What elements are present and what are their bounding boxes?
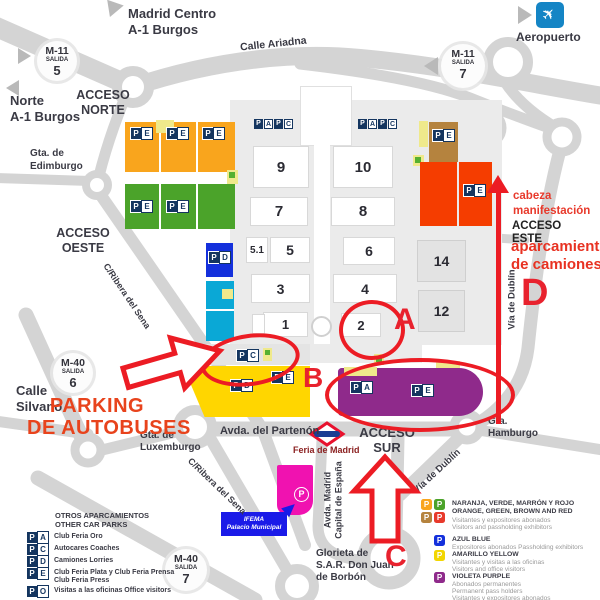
legend-row-text: Camiones Lorries (54, 557, 113, 565)
note-line: PARKING (27, 395, 167, 417)
access-line: NORTE (76, 103, 130, 118)
c-badge: C (284, 119, 293, 129)
street-name: Capital de España (334, 453, 345, 548)
pe-badge: PE (166, 127, 189, 140)
hall-5-number: 5 (286, 242, 294, 258)
hall-9: 9 (253, 146, 309, 188)
street-name: Hamburgo (488, 428, 538, 440)
e-badge: E (177, 200, 189, 213)
p-badge: P (274, 119, 283, 129)
note-cabeza-manifestacion: cabeza manifestación (513, 189, 590, 219)
hall-4-number: 4 (361, 281, 369, 297)
legend-row-text: Club Feria Plata y Club Feria Prensa (54, 569, 174, 577)
legend-row-text: Autocares Coaches (54, 545, 119, 553)
p-badge: P (358, 119, 367, 129)
convention-center-building (300, 86, 352, 146)
plaza-circle (311, 316, 332, 337)
hall-1-number: 1 (282, 317, 289, 332)
o-badge: O (37, 585, 49, 598)
acceso-norte-label: ACCESO NORTE (76, 88, 130, 118)
hall-7: 7 (250, 197, 308, 226)
purple-chip: P (434, 572, 445, 583)
legend-title-line: OTHER CAR PARKS (55, 520, 149, 529)
street-name: Avda. del Partenón (220, 425, 319, 437)
yellow-chip: P (434, 550, 445, 561)
ifema-palacio-label: IFEMA Palacio Municipal (221, 512, 287, 536)
legend-right-sub: Permanent pass holders (452, 588, 522, 595)
ifema-name: IFEMA (221, 516, 287, 524)
note-line: aparcamiento (511, 238, 600, 256)
legend-right-sub: Visitors and passholding exhibitors (452, 524, 552, 531)
hall-6-number: 6 (365, 243, 373, 259)
note-parking-autobuses: PARKING DE AUTOBUSES (27, 395, 167, 439)
note-line: de camiones (511, 256, 600, 274)
green-chip: P (434, 499, 445, 510)
hall-7-number: 7 (275, 203, 283, 220)
hall-3: 3 (251, 274, 310, 303)
parking-divider (206, 309, 234, 311)
gate-marker (222, 289, 233, 299)
acceso-oeste-label: ACCESO OESTE (56, 226, 110, 256)
e-badge: E (474, 184, 486, 197)
palacio-name: Palacio Municipal (221, 524, 287, 532)
street-avda-partenon: Avda. del Partenón (220, 425, 319, 437)
exit-number: 7 (441, 67, 485, 80)
pe-badge: PE (130, 127, 153, 140)
dest-line: A-1 Burgos (10, 109, 80, 125)
marker-c: C (385, 540, 407, 574)
c-badge: C (388, 119, 397, 129)
hall-9-number: 9 (277, 159, 285, 176)
brown-parking-east (429, 122, 458, 162)
gate-marker (419, 121, 428, 147)
hall-8: 8 (331, 197, 395, 226)
street-name: Gta. de (30, 147, 83, 160)
p-badge: P (254, 119, 263, 129)
street-name: de Borbón (316, 572, 394, 584)
legend-right-sub: Expositores abonados Passholding exhibit… (452, 544, 583, 551)
legend-right-sub: Abonados permanentes (452, 581, 521, 588)
blue-chip: P (434, 535, 445, 546)
note-line: manifestación (513, 204, 590, 219)
e-badge: E (213, 127, 225, 140)
hall-4: 4 (333, 274, 397, 303)
e-badge: E (443, 129, 455, 142)
street-name: S.A.R. Don Juan (316, 560, 394, 572)
p-badge: P (378, 119, 387, 129)
street-name: Edimburgo (30, 160, 83, 173)
red-parking-east-1 (420, 162, 457, 226)
exit-m11-salida5: M-11 SALIDA 5 (37, 41, 77, 81)
dest-norte-burgos: Norte A-1 Burgos (10, 93, 80, 125)
marker-a: A (394, 303, 416, 337)
legend-title-line: OTROS APARCAMIENTOS (55, 511, 149, 520)
street-name: Glorieta de (316, 548, 394, 560)
red-chip: P (434, 512, 445, 523)
access-line: ACCESO (512, 220, 561, 233)
pe-badge: PE (166, 200, 189, 213)
papc-badges-west: PAPC (254, 119, 293, 129)
legend-right-title: AMARILLO YELLOW (452, 551, 519, 559)
hall-5: 5 (270, 237, 310, 263)
orange-chip: P (421, 499, 432, 510)
a-badge: A (368, 119, 377, 129)
legend-left-title: OTROS APARCAMIENTOS OTHER CAR PARKS (55, 511, 149, 529)
note-line: DE AUTOBUSES (27, 417, 167, 439)
dest-line: Madrid Centro (128, 6, 216, 22)
street-avda-madrid: Avda. Madrid Capital de España (323, 453, 345, 548)
exit-m11-salida7: M-11 SALIDA 7 (441, 44, 485, 88)
pe-badge: PE (202, 127, 225, 140)
central-avenue (314, 144, 330, 344)
hall-1-annex (252, 314, 265, 334)
hall-5-1: 5.1 (246, 237, 268, 263)
legend-right-sub: Visitantes y expositores abonados (452, 517, 551, 524)
d-badge: D (219, 251, 231, 264)
hall-6: 6 (343, 237, 395, 265)
legend-row-text: Club Feria Oro (54, 533, 103, 541)
marker-d: D (521, 272, 548, 315)
e-badge: E (141, 127, 153, 140)
e-badge: E (177, 127, 189, 140)
access-line: OESTE (56, 241, 110, 256)
legend-pe-badge: PE (26, 567, 49, 580)
marker-b: B (303, 362, 323, 394)
street-gta-edimburgo: Gta. de Edimburgo (30, 147, 83, 173)
dest-line: Aeropuerto (516, 30, 581, 44)
e-badge: E (141, 200, 153, 213)
dest-madrid-centro: Madrid Centro A-1 Burgos (128, 6, 216, 38)
note-line: cabeza (513, 189, 590, 204)
plane-glyph: ✈ (536, 1, 564, 29)
legend-right-title: NARANJA, VERDE, MARRÓN Y ROJO (452, 500, 574, 508)
hall-10: 10 (333, 146, 393, 188)
e-badge: E (37, 567, 49, 580)
access-line: ACCESO (76, 88, 130, 103)
marker-letter: C (385, 540, 407, 573)
legend-right-title: ORANGE, GREEN, BROWN AND RED (452, 508, 573, 516)
legend-row-text: Visitas a las oficinas Office visitors (54, 587, 171, 595)
marker-letter: B (303, 362, 323, 393)
p-circle-badge: P (294, 487, 309, 502)
street-name: Avda. Madrid (323, 453, 334, 548)
hall-14: 14 (417, 240, 466, 282)
hall-12: 12 (418, 290, 465, 332)
airport-icon: ✈ (536, 2, 564, 28)
pd-badge: PD (208, 251, 231, 264)
legend-right-title: VIOLETA PURPLE (452, 573, 510, 581)
exit-road: M-11 (441, 49, 485, 60)
hall-8-number: 8 (359, 203, 367, 220)
legend-right-sub: Visitantes y visitas a las oficinas (452, 559, 544, 566)
pe-badge: PE (463, 184, 486, 197)
hall-3-number: 3 (277, 281, 285, 297)
parking-divider (196, 122, 198, 172)
marker-letter: D (521, 272, 548, 314)
brown-chip: P (421, 512, 432, 523)
exit-road: M-40 (165, 554, 207, 565)
pe-badge: PE (432, 129, 455, 142)
access-line: ACCESO (56, 226, 110, 241)
marker-letter: A (394, 303, 416, 336)
p-badge: P (298, 489, 304, 499)
street-glorieta-sar: Glorieta de S.A.R. Don Juan de Borbón (316, 548, 394, 584)
street-name: Luxemburgo (140, 442, 201, 454)
legend-row-text: Club Feria Press (54, 577, 109, 585)
arrow-right-icon (518, 6, 532, 24)
ifema-parking-map: 9 10 7 8 5.1 5 6 3 4 1 2 14 12 PAPC PAPC… (0, 0, 600, 600)
hall-5-1-number: 5.1 (250, 245, 264, 256)
exit-number: 5 (37, 64, 77, 77)
gate-marker (227, 170, 238, 184)
hall-12-number: 12 (434, 303, 450, 319)
exit-road: M-11 (37, 46, 77, 57)
acceso-sur-arrow (350, 453, 420, 545)
parking-divider (196, 184, 198, 229)
parking-divider (159, 184, 161, 229)
legend-right-title: AZUL BLUE (452, 536, 490, 544)
hall-14-number: 14 (434, 253, 450, 269)
note-aparcamiento-camiones: aparcamiento de camiones (511, 238, 600, 273)
dest-aeropuerto: Aeropuerto (516, 30, 581, 44)
arrow-left-icon (424, 57, 438, 75)
exit-road: M-40 (53, 358, 93, 369)
papc-badges-east: PAPC (358, 119, 397, 129)
manifestation-arrow-head (487, 175, 509, 193)
circle-purple-parking (325, 358, 515, 432)
manifestation-arrow-shaft (496, 192, 501, 424)
dest-line: A-1 Burgos (128, 22, 216, 38)
a-badge: A (264, 119, 273, 129)
dest-line: Norte (10, 93, 80, 109)
pe-badge: PE (130, 200, 153, 213)
legend-right-sub: Visitors and office visitors (452, 566, 525, 573)
legend-right-sub: Visitantes y expositores abonados (452, 595, 551, 600)
hall-10-number: 10 (355, 159, 372, 176)
legend-po-badge: PO (26, 585, 49, 598)
arrow-right-icon (18, 48, 31, 64)
